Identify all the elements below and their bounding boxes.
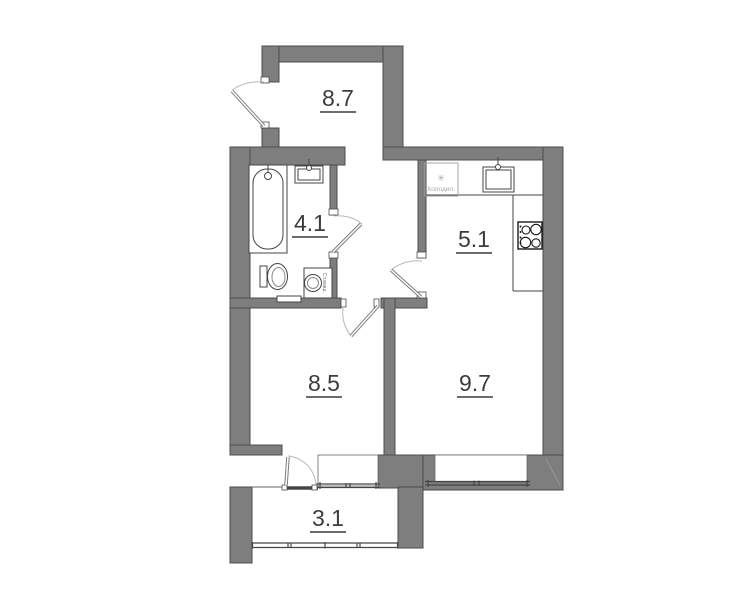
bathroom-area-label: 4.1 [294, 210, 326, 236]
balcony-glazing [252, 542, 398, 549]
balcony-door-arc [288, 456, 316, 486]
bathtub-faucet-icon [265, 173, 272, 180]
floor-plan-canvas: Ст.маш. ✳ Холодил. [0, 0, 738, 610]
sink-faucet-icon [496, 165, 501, 170]
room-1-area-label: 8.5 [308, 370, 340, 396]
window-recess [318, 455, 378, 486]
wall-segment [378, 455, 423, 488]
room-1-door-arc [343, 308, 351, 336]
burner [531, 224, 541, 234]
bathroom-door-arc [334, 216, 362, 224]
wall-segment [262, 46, 403, 62]
entrance-door-arc [232, 82, 264, 90]
burner [522, 226, 530, 234]
kitchen-area-label: 5.1 [458, 226, 490, 252]
burner [532, 239, 540, 247]
door-jamb [341, 299, 346, 307]
room-2-area-label: 9.7 [459, 370, 491, 396]
floor-plan: Ст.маш. ✳ Холодил. [0, 0, 738, 610]
bathtub [249, 165, 287, 253]
hallway-area-label: 8.7 [322, 85, 354, 111]
balcony-area-label: 3.1 [312, 505, 344, 531]
kitchen-fixtures: ✳ Холодил. [425, 157, 543, 291]
wall-segment [384, 298, 395, 455]
stove-knob [520, 242, 522, 244]
wall-segment [543, 147, 563, 490]
stove-knob [520, 237, 522, 239]
door-jamb [282, 485, 287, 490]
sink-faucet-icon [307, 166, 312, 171]
bath-mat [277, 296, 301, 302]
toilet [260, 264, 288, 290]
door-jamb [417, 252, 426, 258]
window-recess [435, 455, 527, 482]
kitchen-door-arc [391, 261, 422, 270]
stove-knob [520, 226, 522, 228]
fridge-snowflake-icon: ✳ [437, 173, 445, 183]
washing-machine: Ст.маш. [304, 268, 332, 298]
door-jamb [329, 209, 338, 215]
wall-segment [262, 46, 279, 82]
wall-segment [230, 445, 282, 455]
wall-segment [383, 46, 403, 160]
washer-label: Ст.маш. [321, 273, 327, 294]
burner [520, 237, 530, 247]
stove-knob [520, 231, 522, 233]
wall-segment [398, 487, 423, 548]
fridge-label: Холодил. [427, 186, 455, 193]
wall-segment [230, 487, 252, 563]
fridge: ✳ Холодил. [425, 163, 458, 196]
kitchen-sink [483, 157, 514, 192]
door-jamb [329, 252, 338, 258]
stove [518, 222, 542, 249]
wall-segment [383, 147, 563, 160]
wall-segment [330, 165, 337, 215]
